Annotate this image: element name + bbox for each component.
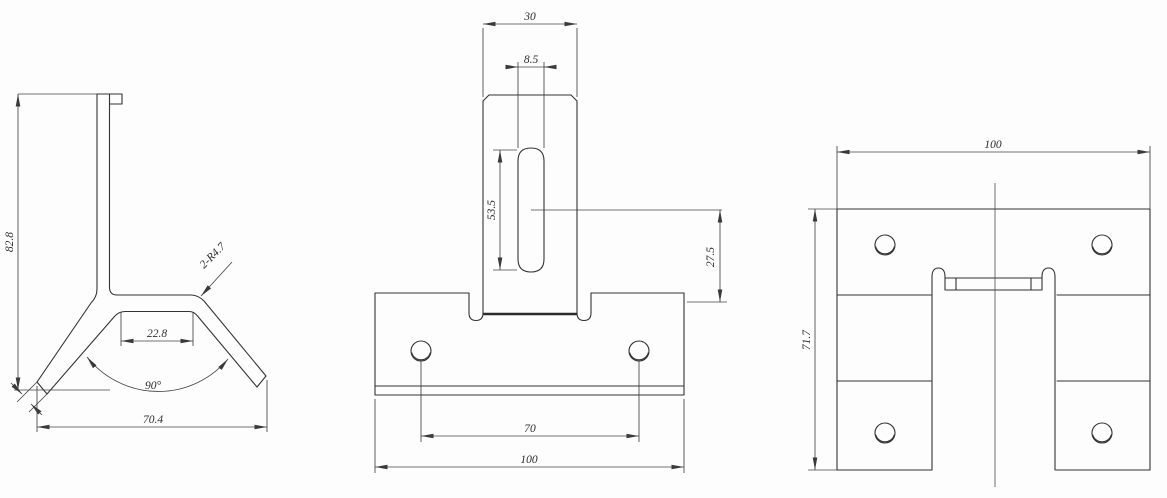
technical-drawing-canvas: 82.8 22.8 90° 70.4 2-R4.7 [0,0,1167,498]
dim-text-angle: 90° [145,380,162,392]
side-right-foot-cap [257,376,266,387]
side-right-leg-outer [191,295,266,376]
front-hole-right [629,341,649,361]
top-tab-left-edge [932,268,945,470]
front-view: 30 8.5 53.5 27.5 70 100 [375,11,727,473]
dim-text-height: 82.8 [4,232,16,252]
top-hole-tl [875,235,895,255]
top-hole-br [1092,423,1112,443]
dim-text-plate-width: 100 [520,454,538,466]
dim-thickness-arrow-2 [31,404,42,415]
side-upright-and-left-leg [37,94,97,382]
dim-ext-top-width [837,146,1150,209]
side-upright-top-step [97,94,122,104]
dim-text-slot-width: 8.5 [524,54,539,66]
side-upright-right-edge-and-flat-outer [110,104,192,295]
dim-text-top-width: 100 [984,139,1002,151]
top-hole-bl [875,423,895,443]
top-tab-right-edge [1042,268,1055,470]
dim-text-top-depth: 71.7 [801,329,813,350]
drawing-sheet: 82.8 22.8 90° 70.4 2-R4.7 [0,0,1167,498]
front-relief-notch-right [577,293,591,321]
dim-thickness-extensions [17,382,47,412]
dim-text-base: 70.4 [143,414,163,426]
front-relief-notch-left [469,293,483,321]
front-hole-left [411,341,431,361]
top-view: 100 71.7 [801,139,1150,487]
top-hole-tr [1092,235,1112,255]
top-outline [837,209,1150,470]
dim-text-hole-pitch: 70 [524,423,536,435]
dim-thickness-arrow-1 [11,383,22,394]
dim-ext-slot-width [518,62,544,148]
side-left-foot-cap [37,382,47,394]
dim-text-slot-offset: 27.5 [705,247,717,267]
dim-text-slot-length: 53.5 [486,200,498,220]
top-fold-lines [837,295,1150,381]
side-view: 82.8 22.8 90° 70.4 2-R4.7 [4,94,267,432]
dim-text-bend-radius: 2-R4.7 [198,240,229,271]
dim-text-flat: 22.8 [147,328,167,340]
dim-text-tab-width: 30 [523,11,536,23]
top-tab-band [945,278,1042,290]
dim-ext-slot-offset [531,210,727,302]
